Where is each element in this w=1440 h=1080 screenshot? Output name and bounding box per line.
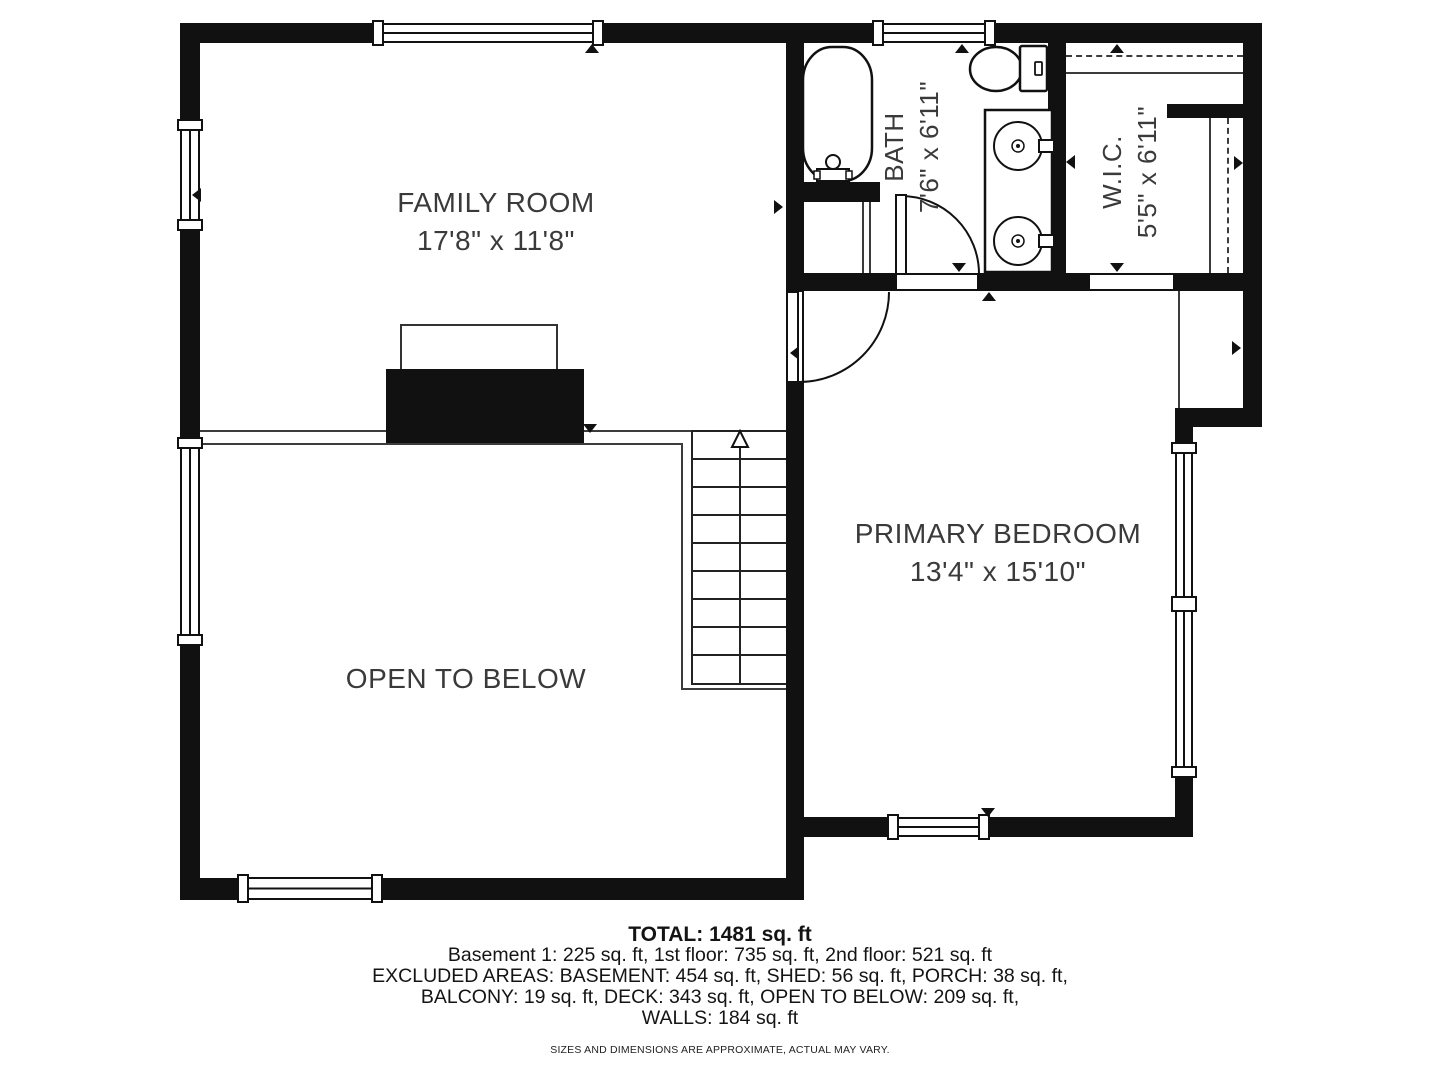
dimension-arrow <box>192 188 201 202</box>
toilet-flush-button <box>1035 62 1042 75</box>
room-name: OPEN TO BELOW <box>346 660 586 698</box>
bathtub-faucet-base <box>817 169 849 181</box>
vanity-faucet-1 <box>1039 140 1054 152</box>
room-dims: 5'5" x 6'11" <box>1130 106 1165 238</box>
vanity-faucet-2 <box>1039 235 1054 247</box>
room-name: PRIMARY BEDROOM <box>855 515 1142 553</box>
dimension-arrow <box>1232 341 1241 355</box>
disclaimer: SIZES AND DIMENSIONS ARE APPROXIMATE, AC… <box>0 1044 1440 1056</box>
summary-line-2: EXCLUDED AREAS: BASEMENT: 454 sq. ft, SH… <box>0 966 1440 987</box>
room-dims: 13'4" x 15'10" <box>855 553 1142 591</box>
room-name: FAMILY ROOM <box>397 184 594 222</box>
bedroom-door-arc <box>799 292 889 382</box>
vanity-drain-dot-2 <box>1016 239 1020 243</box>
total-area: TOTAL: 1481 sq. ft <box>0 924 1440 945</box>
dimension-arrow <box>1110 44 1124 53</box>
room-name: W.I.C. <box>1095 106 1130 238</box>
area-summary: TOTAL: 1481 sq. ft Basement 1: 225 sq. f… <box>0 924 1440 1056</box>
dimension-arrow <box>790 346 799 360</box>
dimension-arrow <box>583 424 597 433</box>
summary-line-3: BALCONY: 19 sq. ft, DECK: 343 sq. ft, OP… <box>0 987 1440 1008</box>
dimension-arrow <box>585 44 599 53</box>
dimension-arrow <box>1234 156 1243 170</box>
fixtures-layer <box>0 0 1440 1080</box>
bath-label: BATH 7'6" x 6'11" <box>877 81 947 213</box>
summary-line-4: WALLS: 184 sq. ft <box>0 1008 1440 1029</box>
bathtub-faucet-tab <box>814 171 820 179</box>
dimension-arrow <box>1066 155 1075 169</box>
bathtub-faucet-tab <box>846 171 852 179</box>
primary-bedroom-label: PRIMARY BEDROOM 13'4" x 15'10" <box>855 515 1142 591</box>
bathtub-faucet-knob <box>826 155 840 169</box>
open-to-below-label: OPEN TO BELOW <box>346 660 586 698</box>
vanity-drain-dot-1 <box>1016 144 1020 148</box>
wic-label: W.I.C. 5'5" x 6'11" <box>1095 106 1165 238</box>
staircase <box>692 431 786 684</box>
toilet-bowl <box>970 47 1022 91</box>
floor-plan: FAMILY ROOM 17'8" x 11'8" BATH 7'6" x 6'… <box>0 0 1440 1080</box>
dimension-arrow <box>981 808 995 817</box>
summary-line-1: Basement 1: 225 sq. ft, 1st floor: 735 s… <box>0 945 1440 966</box>
dimension-arrow <box>955 44 969 53</box>
dimension-arrow <box>982 292 996 301</box>
stairs-up-arrow-icon <box>732 431 748 447</box>
family-room-label: FAMILY ROOM 17'8" x 11'8" <box>397 184 594 260</box>
room-name: BATH <box>877 81 912 213</box>
dimension-arrow <box>952 263 966 272</box>
room-dims: 7'6" x 6'11" <box>912 81 947 213</box>
bedroom-door-leaf <box>787 292 798 382</box>
dimension-arrow <box>1110 263 1124 272</box>
toilet-tank <box>1020 46 1047 91</box>
dimension-arrow <box>774 200 783 214</box>
room-dims: 17'8" x 11'8" <box>397 222 594 260</box>
